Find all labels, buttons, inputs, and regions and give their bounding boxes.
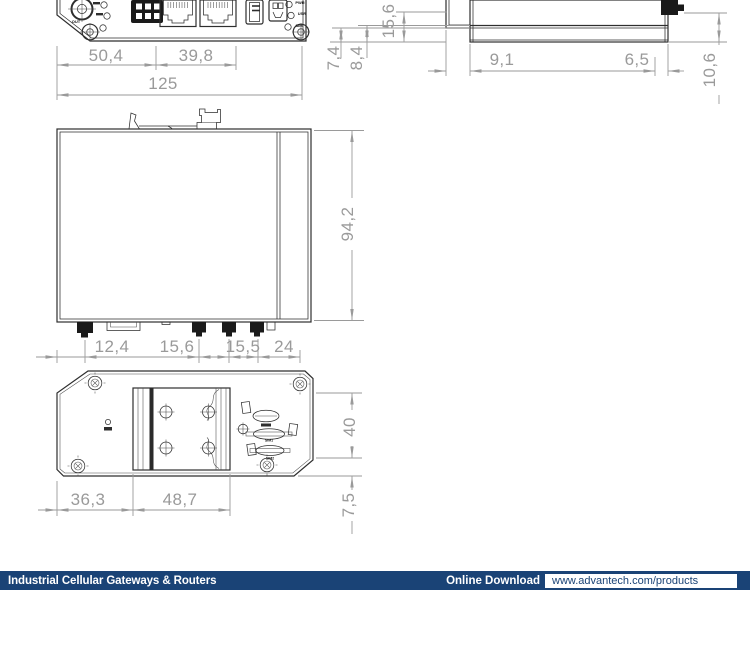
technical-drawing (0, 0, 750, 650)
dim-label-rear-offset: 7,5 (339, 493, 359, 518)
dim-label-side-depth-right: 6,5 (625, 50, 650, 70)
sim-slot-cluster (237, 401, 298, 455)
label-led-sim: SIM (295, 24, 302, 28)
grounding-point-icon (104, 419, 112, 430)
datasheet-drawing-page: 50,4 39,8 125 7,4 8,4 15,6 9,1 6,5 10,6 … (0, 0, 750, 650)
dim-label-side-lip-large: 8,4 (347, 46, 367, 71)
usb-port-icon (246, 0, 263, 24)
io-terminal-icon (269, 0, 287, 21)
footer-category-title: Industrial Cellular Gateways & Routers (8, 575, 216, 587)
dim-label-front-seg2: 39,8 (179, 46, 214, 66)
dim-label-side-lip-small: 7,4 (324, 46, 344, 71)
footer-url-box[interactable]: www.advantech.com/products (545, 574, 737, 588)
label-led-usr: USR (298, 12, 306, 16)
top-view (36, 109, 364, 363)
dim-label-side-depth-left: 9,1 (490, 50, 515, 70)
dim-label-top-c4: 24 (274, 337, 294, 357)
label-led-pwr: PWR (295, 1, 304, 5)
power-connector-6pin-icon (131, 0, 163, 23)
footer-url[interactable]: www.advantech.com/products (552, 575, 698, 587)
footer-bar: Industrial Cellular Gateways & Routers O… (0, 571, 750, 590)
din-clip-hook-icon (129, 113, 197, 129)
dim-label-rear-bracket: 48,7 (163, 490, 198, 510)
din-rail-bracket-icon (133, 388, 230, 470)
label-sim1: SIM1 (265, 439, 273, 443)
dim-label-top-height: 94,2 (338, 207, 358, 242)
dim-label-front-seg1: 50,4 (89, 46, 124, 66)
dim-label-front-total: 125 (148, 74, 178, 94)
footer-download-label: Online Download (446, 575, 540, 587)
dim-label-side-connector-height: 10,6 (700, 53, 720, 88)
din-clip-latch-icon (197, 109, 221, 129)
dim-label-top-c3: 15,5 (226, 337, 261, 357)
label-sim2: SIM2 (266, 457, 274, 461)
ethernet-port-2-icon (200, 0, 236, 27)
bottom-edge-connectors (77, 322, 275, 338)
dim-label-rear-left: 36,3 (71, 490, 106, 510)
dim-label-rear-bracket-height: 40 (340, 417, 360, 437)
ethernet-port-1-icon (160, 0, 196, 27)
dim-label-top-c1: 12,4 (95, 337, 130, 357)
dim-label-side-height: 15,6 (379, 4, 399, 39)
dim-label-top-c2: 15,6 (160, 337, 195, 357)
footer-download-area: Online Download www.advantech.com/produc… (446, 571, 750, 590)
side-antenna-connector-icon (661, 0, 684, 15)
label-antenna-out: OUT (72, 20, 80, 24)
led-column-right (285, 1, 294, 30)
